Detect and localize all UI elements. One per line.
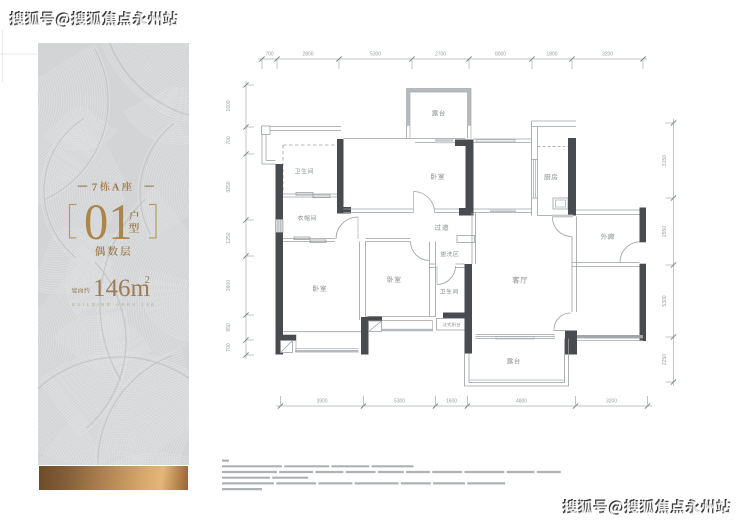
svg-text:1600: 1600 <box>446 399 457 405</box>
svg-text:3250: 3250 <box>226 181 232 192</box>
svg-text:8000: 8000 <box>495 52 506 58</box>
svg-text:5300: 5300 <box>370 52 381 58</box>
svg-text:1800: 1800 <box>546 52 557 58</box>
svg-text:5300: 5300 <box>662 295 668 306</box>
svg-text:5300: 5300 <box>394 399 405 405</box>
svg-text:1600: 1600 <box>226 100 232 111</box>
svg-text:A: A <box>112 182 120 193</box>
svg-text:700: 700 <box>226 343 232 352</box>
svg-text:BUILDING AREA 146: BUILDING AREA 146 <box>72 302 156 307</box>
svg-text:700: 700 <box>265 52 274 58</box>
svg-text:3600: 3600 <box>226 280 232 291</box>
svg-text:2: 2 <box>145 274 151 286</box>
svg-text:7: 7 <box>92 181 98 193</box>
svg-text:3200: 3200 <box>606 399 617 405</box>
svg-text:3150: 3150 <box>662 155 668 166</box>
svg-text:4800: 4800 <box>516 399 527 405</box>
svg-text:700: 700 <box>226 136 232 145</box>
svg-text:3900: 3900 <box>316 399 327 405</box>
svg-text:01: 01 <box>84 194 132 250</box>
svg-text:2550: 2550 <box>662 226 668 237</box>
svg-text:3200: 3200 <box>602 52 613 58</box>
svg-text:2800: 2800 <box>302 52 313 58</box>
svg-text:146m: 146m <box>93 275 151 302</box>
svg-text:1250: 1250 <box>226 232 232 243</box>
svg-text:2250: 2250 <box>662 354 668 365</box>
svg-text:2700: 2700 <box>435 52 446 58</box>
svg-text:950: 950 <box>226 323 232 332</box>
